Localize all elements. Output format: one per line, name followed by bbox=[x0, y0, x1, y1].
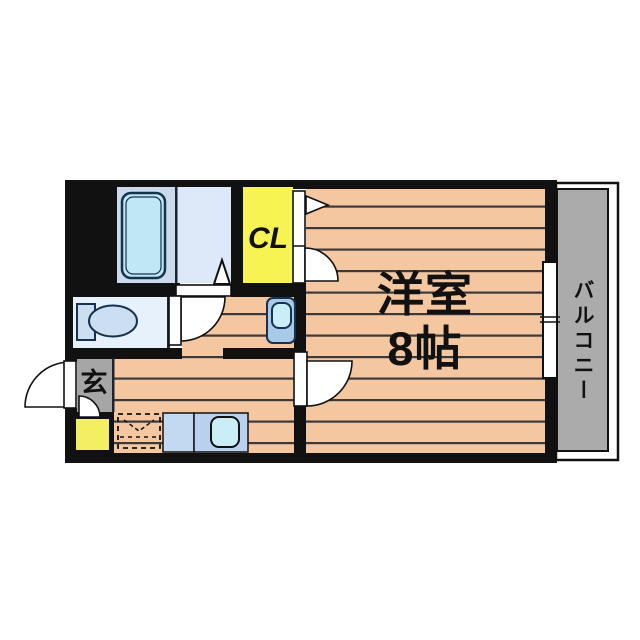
floor-plan-drawing bbox=[0, 0, 640, 640]
entrance-label: 玄 bbox=[79, 361, 109, 400]
closet-label: CL bbox=[244, 222, 292, 256]
main-room-label: 洋室 8帖 bbox=[330, 268, 520, 376]
corridor-opening bbox=[182, 348, 223, 359]
window bbox=[540, 262, 560, 378]
washbasin-icon bbox=[267, 298, 295, 343]
main-room-size: 8帖 bbox=[330, 322, 520, 376]
shoe-cabinet bbox=[75, 418, 110, 451]
kitchen-sink-icon bbox=[211, 417, 239, 447]
bathtub-icon bbox=[122, 193, 165, 278]
entrance-hall-divider bbox=[112, 358, 115, 412]
floor-plan: 洋室 8帖 CL 玄 バルコニー bbox=[0, 0, 640, 640]
main-room-name: 洋室 bbox=[330, 268, 520, 322]
kitchen-counter bbox=[163, 413, 248, 452]
balcony-label: バルコニー bbox=[569, 246, 597, 436]
bath-washroom-divider bbox=[175, 187, 178, 283]
